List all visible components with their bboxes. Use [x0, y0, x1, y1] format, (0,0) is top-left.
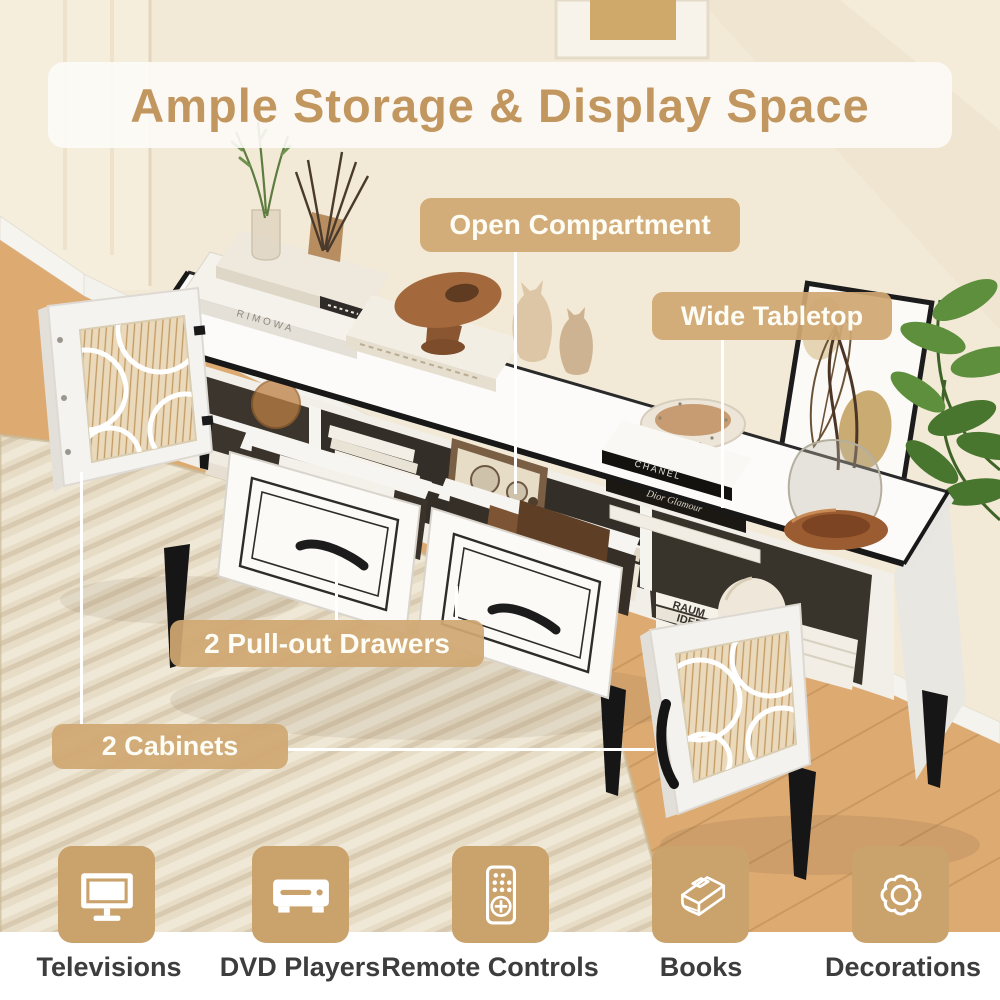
feature-label-televisions: Televisions	[9, 946, 209, 988]
feature-tile-decorations	[852, 846, 949, 943]
feature-label-dvd-players: DVD Players	[200, 946, 400, 988]
connector-drawer-2	[455, 586, 458, 620]
connector-wide-tabletop	[721, 340, 724, 508]
title-banner: Ample Storage & Display Space	[48, 62, 952, 148]
callout-label: 2 Cabinets	[102, 731, 239, 762]
book-icon	[670, 864, 732, 926]
connector-cabinet-left	[80, 472, 83, 724]
callout-cabinets: 2 Cabinets	[52, 724, 288, 769]
product-infographic: Andy Warhol	[0, 0, 1000, 1000]
callout-pull-out-drawers: 2 Pull-out Drawers	[170, 620, 484, 667]
remote-control-icon	[470, 864, 532, 926]
connector-cabinet-right	[288, 748, 654, 751]
television-icon	[76, 864, 138, 926]
feature-tile-dvd-players	[252, 846, 349, 943]
feature-tile-books	[652, 846, 749, 943]
page-title: Ample Storage & Display Space	[130, 78, 869, 133]
flower-icon	[870, 864, 932, 926]
dvd-player-icon	[270, 864, 332, 926]
connector-drawer-1	[335, 558, 338, 620]
feature-label-books: Books	[601, 946, 801, 988]
feature-label-remote-controls: Remote Controls	[380, 946, 600, 988]
feature-label-decorations: Decorations	[803, 946, 1000, 988]
connector-open-compartment	[514, 252, 517, 494]
callout-open-compartment: Open Compartment	[420, 198, 740, 252]
wall-art	[556, 0, 708, 58]
feature-tile-televisions	[58, 846, 155, 943]
callout-label: 2 Pull-out Drawers	[204, 628, 450, 660]
feature-tile-remote-controls	[452, 846, 549, 943]
callout-label: Open Compartment	[449, 209, 710, 241]
callout-wide-tabletop: Wide Tabletop	[652, 292, 892, 340]
callout-label: Wide Tabletop	[681, 301, 863, 332]
